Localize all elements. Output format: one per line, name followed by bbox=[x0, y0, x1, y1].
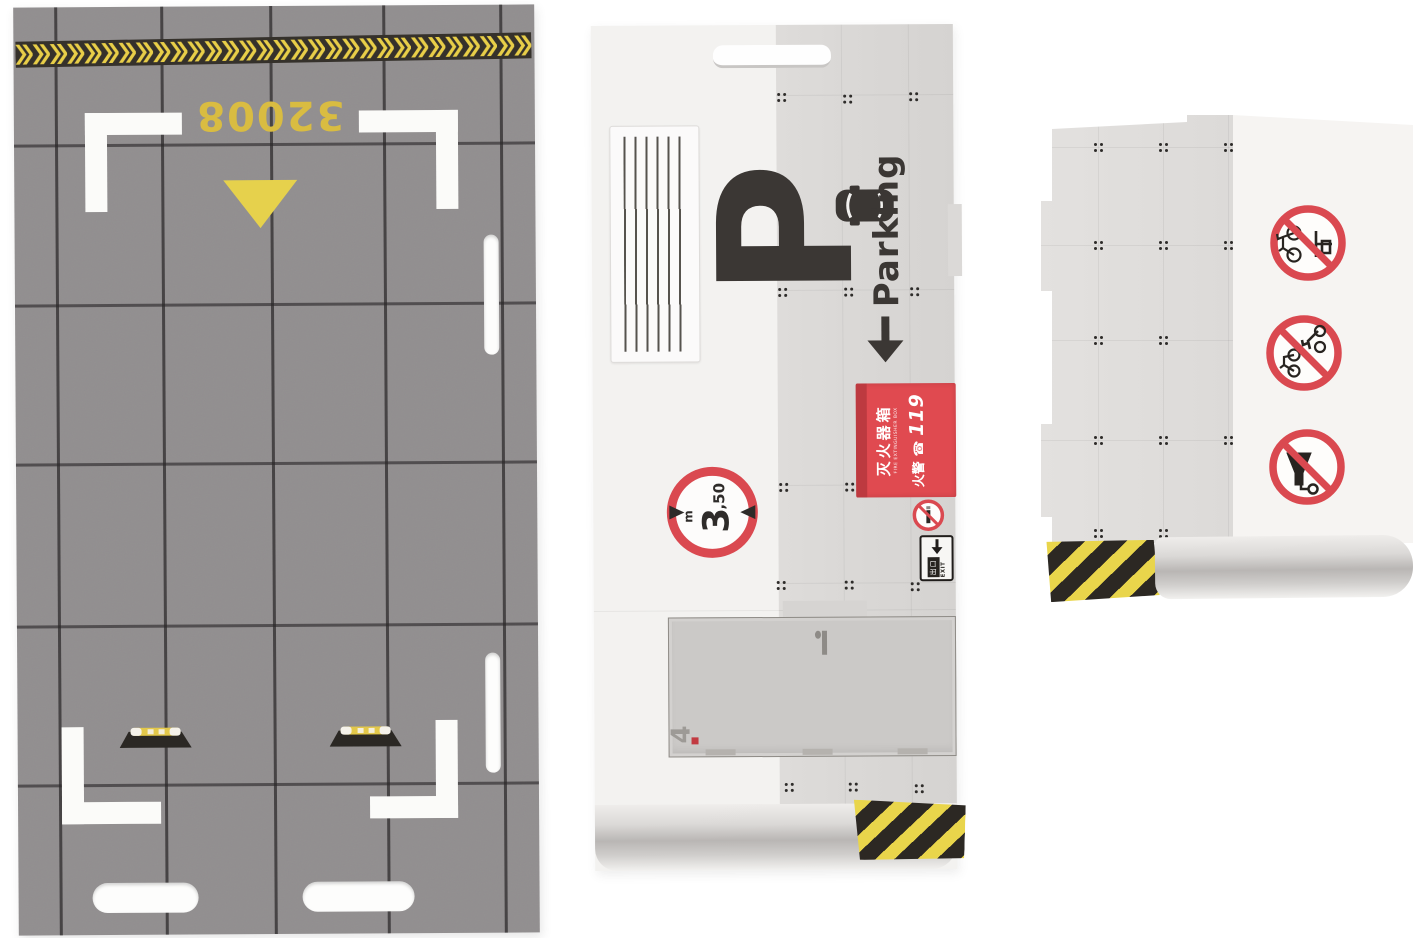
fire-alarm-number: 119 bbox=[906, 393, 928, 436]
corner-bracket-tl bbox=[85, 113, 108, 212]
perforation-dots bbox=[843, 95, 846, 98]
slot-cutout bbox=[93, 882, 199, 913]
perforation-dots bbox=[1094, 529, 1097, 532]
door-panel bbox=[668, 616, 957, 758]
fire-extinguisher-sign: 灭火器箱 FIRE EXTINGUISHER BOX 火警 ☎ 119 bbox=[856, 383, 957, 498]
direction-triangle-icon bbox=[223, 180, 297, 228]
corner-bracket-br bbox=[370, 796, 458, 819]
wall-gray-panel bbox=[1041, 113, 1233, 543]
hazard-stripe-icon bbox=[852, 800, 966, 863]
corner-bracket-tr bbox=[436, 110, 459, 209]
hazard-stripe-icon bbox=[1045, 538, 1160, 604]
grid-line bbox=[16, 460, 537, 466]
parking-p-letter: P bbox=[686, 129, 887, 330]
signs-wall-piece bbox=[1041, 113, 1413, 605]
floor-sheet-piece: 32008 bbox=[13, 4, 540, 935]
fold-line bbox=[1041, 440, 1233, 441]
corner-bracket-bl bbox=[62, 802, 161, 825]
parking-wall-piece: P Parking 灭火器箱 FIRE EXTINGUISHER BOX 火警 … bbox=[591, 24, 957, 871]
wheel-stop-icon bbox=[330, 725, 402, 748]
no-horn-sign bbox=[1267, 427, 1347, 507]
fold-line bbox=[1041, 340, 1233, 341]
wall-white-panel bbox=[1233, 115, 1413, 543]
door-tab-mark bbox=[803, 749, 833, 755]
perforation-dots bbox=[915, 784, 918, 787]
grid-line bbox=[15, 301, 536, 307]
perforation-dots bbox=[1094, 336, 1097, 339]
exit-cn-label: 出口 bbox=[927, 557, 939, 577]
perforation-dots bbox=[777, 93, 780, 96]
no-motorcycles-sign bbox=[1264, 313, 1344, 393]
perforation-dots bbox=[785, 783, 788, 786]
perforation-dots bbox=[1159, 241, 1162, 244]
fold-line bbox=[1041, 147, 1233, 148]
door-tab-mark bbox=[706, 749, 736, 755]
perforation-dots bbox=[1224, 241, 1227, 244]
arrow-down-icon bbox=[864, 316, 906, 362]
no-bicycles-sign bbox=[1268, 203, 1348, 283]
perforation-dots bbox=[1094, 143, 1097, 146]
perforation-dots bbox=[1159, 336, 1162, 339]
perforation-dots bbox=[909, 92, 912, 95]
fire-alarm-label: 火警 bbox=[912, 461, 927, 487]
slot-cutout bbox=[484, 235, 500, 355]
perforation-dots bbox=[779, 483, 782, 486]
perforation-dots bbox=[1159, 529, 1162, 532]
height-fraction: ,50 bbox=[710, 483, 728, 510]
perforation-dots bbox=[845, 581, 848, 584]
height-unit: m bbox=[681, 510, 695, 523]
door-handle-icon bbox=[822, 631, 827, 655]
perforation-dots bbox=[1094, 436, 1097, 439]
assembly-tab bbox=[783, 601, 867, 617]
fold-line bbox=[1041, 245, 1233, 246]
grid-line bbox=[18, 781, 539, 787]
fold-line bbox=[1228, 113, 1229, 543]
no-smoking-sign bbox=[911, 498, 945, 532]
exit-en-label: EXIT bbox=[940, 557, 946, 577]
fold-line bbox=[1163, 113, 1164, 543]
exit-sign: 出口 EXIT bbox=[919, 535, 953, 581]
lot-number: 32008 bbox=[180, 91, 360, 138]
curled-paper-edge bbox=[1155, 535, 1414, 600]
perforation-dots bbox=[1094, 241, 1097, 244]
product-photo: 32008 bbox=[0, 0, 1424, 938]
door-tab-mark bbox=[898, 748, 928, 754]
slot-cutout bbox=[303, 881, 415, 912]
slot-cutout bbox=[713, 45, 831, 69]
grid-line bbox=[17, 622, 538, 628]
perforation-dots bbox=[849, 783, 852, 786]
sign-flap bbox=[856, 384, 868, 498]
perforation-dots bbox=[777, 581, 780, 584]
assembly-tab bbox=[948, 204, 962, 276]
extinguisher-subtitle: FIRE EXTINGUISHER BOX bbox=[894, 383, 900, 497]
perforation-dots bbox=[1224, 436, 1227, 439]
perforation-dots bbox=[1224, 143, 1227, 146]
perforation-dots bbox=[910, 287, 913, 290]
perforation-dots bbox=[911, 582, 914, 585]
height-limit-sign: m 3 ,50 bbox=[666, 466, 758, 558]
perforation-dots bbox=[1159, 143, 1162, 146]
door-handle-icon bbox=[815, 631, 821, 639]
height-value: 3 bbox=[696, 508, 737, 533]
parking-label: Parking bbox=[866, 145, 907, 315]
slot-cutout bbox=[485, 653, 501, 773]
phone-icon: ☎ bbox=[912, 440, 927, 456]
perforation-dots bbox=[1159, 436, 1162, 439]
fold-line bbox=[1098, 113, 1099, 543]
arrow-left-icon bbox=[929, 539, 944, 554]
perforation-dots bbox=[845, 483, 848, 486]
chevron-hazard-strip-icon bbox=[15, 31, 531, 68]
wheel-stop-icon bbox=[120, 727, 192, 750]
registration-mark bbox=[692, 737, 699, 744]
extinguisher-title: 灭火器箱 bbox=[873, 383, 895, 497]
